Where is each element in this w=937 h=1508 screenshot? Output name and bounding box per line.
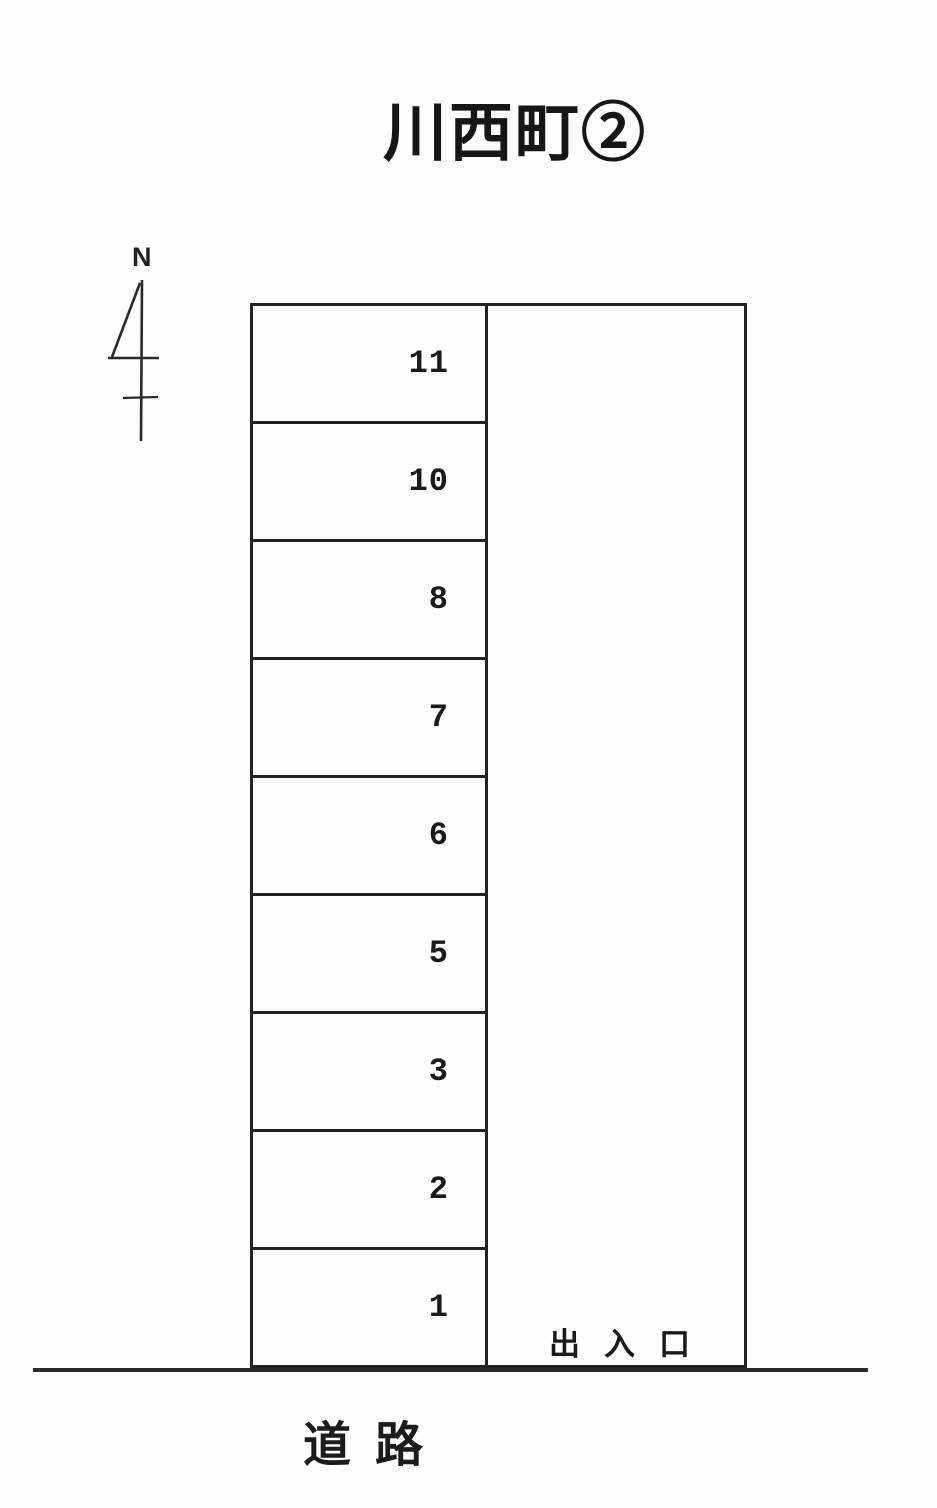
stall-number: 2 bbox=[429, 1171, 449, 1208]
stall-number: 8 bbox=[429, 581, 449, 618]
north-arrow: N bbox=[95, 240, 185, 450]
road-label: 道路 bbox=[303, 1405, 447, 1475]
parking-stall: 3 bbox=[253, 1014, 485, 1132]
parking-stall: 2 bbox=[253, 1132, 485, 1250]
parking-lot-outline: 11 10 8 7 6 5 3 2 1 出入口 bbox=[250, 303, 747, 1368]
stall-number: 6 bbox=[429, 817, 449, 854]
parking-stall: 8 bbox=[253, 542, 485, 660]
north-arrow-icon bbox=[95, 240, 185, 450]
parking-stall: 6 bbox=[253, 778, 485, 896]
stall-number: 10 bbox=[409, 463, 449, 500]
parking-stall: 1 bbox=[253, 1250, 485, 1365]
stall-number: 11 bbox=[409, 345, 449, 382]
stall-number: 1 bbox=[429, 1289, 449, 1326]
page-title: 川西町② bbox=[383, 82, 647, 174]
road-edge-line bbox=[33, 1368, 868, 1372]
parking-stall: 5 bbox=[253, 896, 485, 1014]
entrance-exit-label: 出入口 bbox=[549, 1319, 714, 1364]
parking-stall: 10 bbox=[253, 424, 485, 542]
parking-stall: 11 bbox=[253, 306, 485, 424]
stall-number: 3 bbox=[429, 1053, 449, 1090]
parking-stall: 7 bbox=[253, 660, 485, 778]
stall-number: 7 bbox=[429, 699, 449, 736]
stall-column: 11 10 8 7 6 5 3 2 1 bbox=[253, 306, 488, 1365]
stall-number: 5 bbox=[429, 935, 449, 972]
